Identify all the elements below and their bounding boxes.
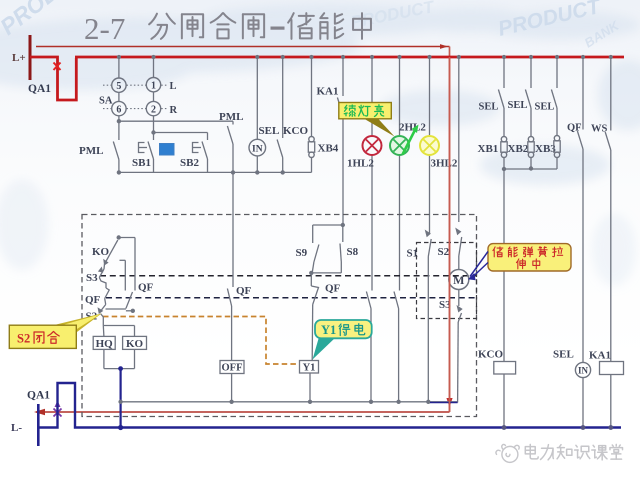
svg-text:QF: QF bbox=[567, 123, 582, 134]
svg-text:L-: L- bbox=[11, 422, 22, 434]
svg-text:SB2: SB2 bbox=[180, 157, 199, 169]
svg-text:S2: S2 bbox=[17, 332, 30, 346]
svg-text:QF: QF bbox=[325, 283, 341, 295]
svg-text:KCO: KCO bbox=[478, 349, 504, 361]
svg-text:PML: PML bbox=[219, 111, 243, 123]
svg-text:SEL: SEL bbox=[259, 125, 280, 137]
svg-text:3HL2: 3HL2 bbox=[431, 158, 458, 170]
svg-text:S8: S8 bbox=[347, 246, 359, 258]
svg-text:L+: L+ bbox=[12, 52, 26, 64]
svg-text:L: L bbox=[170, 81, 177, 92]
svg-text:KA1: KA1 bbox=[317, 86, 339, 98]
svg-text:SEL: SEL bbox=[508, 100, 528, 111]
svg-text:6: 6 bbox=[116, 104, 121, 115]
svg-text:QA1: QA1 bbox=[28, 83, 51, 95]
svg-text:M: M bbox=[453, 273, 464, 287]
svg-text:5: 5 bbox=[116, 81, 121, 92]
svg-text:QF: QF bbox=[85, 294, 101, 306]
svg-text:SEL: SEL bbox=[479, 102, 499, 113]
svg-text:SEL: SEL bbox=[553, 349, 574, 361]
svg-text:1HL2: 1HL2 bbox=[347, 158, 374, 170]
svg-text:IN: IN bbox=[578, 366, 589, 376]
svg-text:Y1: Y1 bbox=[303, 363, 316, 374]
svg-text:KO: KO bbox=[92, 246, 110, 258]
svg-text:Y1: Y1 bbox=[321, 323, 336, 337]
svg-text:IN: IN bbox=[252, 145, 263, 155]
svg-text:XB3: XB3 bbox=[535, 143, 556, 155]
svg-text:2: 2 bbox=[151, 104, 156, 115]
svg-text:XB4: XB4 bbox=[318, 143, 339, 155]
svg-text:SA: SA bbox=[99, 96, 113, 107]
svg-text:SEL: SEL bbox=[535, 102, 555, 113]
svg-text:HQ: HQ bbox=[96, 338, 114, 350]
svg-text:OFF: OFF bbox=[222, 363, 243, 374]
svg-text:XB2: XB2 bbox=[508, 143, 529, 155]
svg-text:KCO: KCO bbox=[283, 125, 309, 137]
svg-text:QA1: QA1 bbox=[27, 390, 50, 402]
svg-text:1: 1 bbox=[151, 81, 156, 92]
svg-text:PML: PML bbox=[79, 145, 103, 157]
svg-text:SB1: SB1 bbox=[132, 157, 151, 169]
svg-text:S1: S1 bbox=[407, 248, 419, 260]
svg-text:QF: QF bbox=[138, 282, 154, 294]
svg-text:S2: S2 bbox=[438, 246, 450, 258]
svg-text:S3: S3 bbox=[86, 272, 98, 284]
svg-text:S9: S9 bbox=[296, 247, 308, 259]
svg-text:QF: QF bbox=[236, 285, 252, 297]
svg-text:XB1: XB1 bbox=[478, 143, 499, 155]
svg-text:R: R bbox=[170, 105, 178, 116]
svg-text:KA1: KA1 bbox=[589, 350, 611, 362]
svg-text:KO: KO bbox=[126, 338, 144, 350]
